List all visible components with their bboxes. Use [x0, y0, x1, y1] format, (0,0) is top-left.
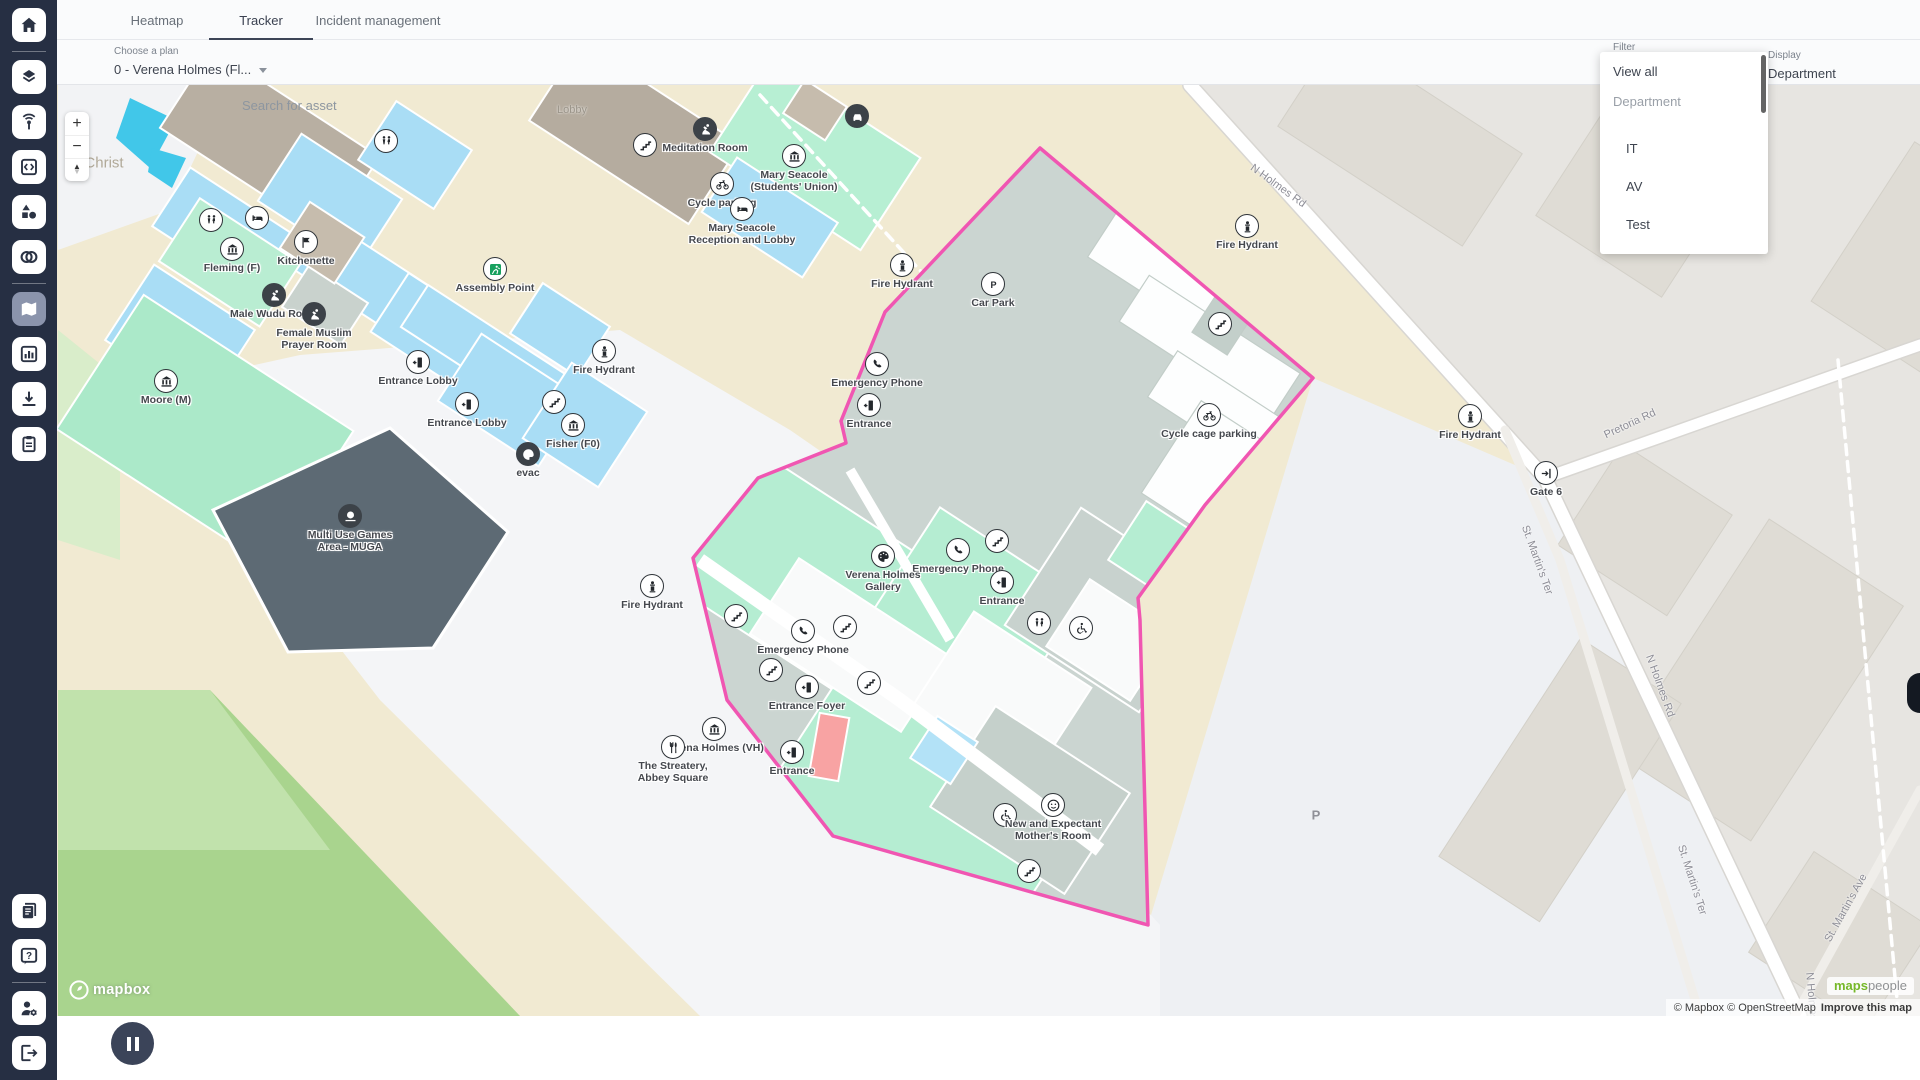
- plan-label: Choose a plan: [114, 46, 179, 57]
- floor-selector-button[interactable]: ▲ ▼: [65, 158, 89, 181]
- right-drawer-handle[interactable]: [1907, 673, 1920, 713]
- sidebar-button-mask-icon[interactable]: [12, 240, 46, 274]
- sidebar-button-chart-icon[interactable]: [12, 337, 46, 371]
- poi-label: Fire Hydrant: [1216, 239, 1278, 251]
- svg-text:P: P: [990, 279, 996, 289]
- poi-label: Fire Hydrant: [621, 599, 683, 611]
- bed-icon[interactable]: [730, 197, 754, 221]
- door-icon[interactable]: [406, 350, 430, 374]
- sidebar-button-code-icon[interactable]: [12, 150, 46, 184]
- flag-icon[interactable]: [294, 230, 318, 254]
- logout-icon: [19, 1043, 39, 1063]
- mapspeople-logo[interactable]: mapspeople: [1827, 977, 1914, 995]
- chevron-down-icon: ▼: [73, 170, 81, 175]
- sidebar-button-layers-icon[interactable]: [12, 60, 46, 94]
- poi-label: Car Park: [971, 297, 1014, 309]
- shapes-icon: [19, 202, 39, 222]
- phone-icon[interactable]: [865, 352, 889, 376]
- poi-label: Multi Use Games Area - MUGA: [308, 529, 393, 554]
- door-icon[interactable]: [795, 675, 819, 699]
- phone-icon[interactable]: [791, 619, 815, 643]
- poi-label: Entrance: [847, 418, 892, 430]
- door-icon[interactable]: [990, 570, 1014, 594]
- poi-label: Fire Hydrant: [573, 364, 635, 376]
- poi-label: evac: [516, 467, 539, 479]
- plan-select[interactable]: 0 - Verena Holmes (Fl...: [114, 62, 267, 77]
- sidebar-divider: [12, 283, 46, 284]
- chart-icon: [19, 344, 39, 364]
- stairs-icon[interactable]: [633, 133, 657, 157]
- basketball-icon[interactable]: [338, 504, 362, 528]
- tab-incident-management[interactable]: Incident management: [313, 0, 443, 40]
- hydrant-icon[interactable]: [640, 574, 664, 598]
- car-icon[interactable]: [845, 104, 869, 128]
- cycle-icon[interactable]: [710, 172, 734, 196]
- smiley-icon[interactable]: [1041, 793, 1065, 817]
- poi-label: New and Expectant Mother's Room: [1005, 818, 1101, 843]
- sidebar-button-home-icon[interactable]: [12, 8, 46, 42]
- pause-button[interactable]: [111, 1022, 154, 1065]
- pause-icon: [127, 1037, 139, 1051]
- poi-label: Kitchenette: [277, 255, 334, 267]
- restroom-icon[interactable]: [374, 129, 398, 153]
- map-icon: [19, 299, 39, 319]
- svg-text:?: ?: [25, 951, 31, 962]
- filter-dropdown-menu: View allDepartmentITAVTest: [1600, 52, 1768, 254]
- download-icon: [19, 389, 39, 409]
- tab-tracker[interactable]: Tracker: [209, 0, 313, 40]
- poi-label: Cycle cage parking: [1161, 428, 1257, 440]
- stairs-icon[interactable]: [833, 615, 857, 639]
- display-label: Display: [1768, 50, 1801, 61]
- restroom-icon[interactable]: [199, 208, 223, 232]
- sidebar-button-logout-icon[interactable]: [12, 1036, 46, 1070]
- mask-icon: [19, 247, 39, 267]
- hydrant-icon[interactable]: [1458, 404, 1482, 428]
- mapbox-attribution[interactable]: © Mapbox: [1674, 1002, 1724, 1014]
- sidebar-button-beacon-icon[interactable]: [12, 105, 46, 139]
- stairs-icon[interactable]: [857, 671, 881, 695]
- prayer-icon[interactable]: [302, 302, 326, 326]
- osm-attribution[interactable]: © OpenStreetMap: [1727, 1002, 1816, 1014]
- menu-item-av[interactable]: AV: [1600, 168, 1768, 206]
- layers-icon: [19, 67, 39, 87]
- door-icon[interactable]: [455, 392, 479, 416]
- parking-icon[interactable]: P: [981, 272, 1005, 296]
- tab-bar: HeatmapTrackerIncident management: [57, 0, 1920, 40]
- bank-icon[interactable]: [702, 717, 726, 741]
- bed-icon[interactable]: [245, 206, 269, 230]
- poi-label: Meditation Room: [662, 142, 747, 154]
- prayer-icon[interactable]: [693, 117, 717, 141]
- door-icon[interactable]: [857, 393, 881, 417]
- menu-scrollbar[interactable]: [1761, 55, 1766, 113]
- assembly-icon[interactable]: [483, 257, 507, 281]
- stairs-icon[interactable]: [759, 658, 783, 682]
- poi-label: Female Muslim Prayer Room: [276, 327, 351, 352]
- tab-heatmap[interactable]: Heatmap: [105, 0, 209, 40]
- sidebar-button-help-icon[interactable]: ?: [12, 939, 46, 973]
- poi-label: Fleming (F): [204, 262, 261, 274]
- poi-label: Fire Hydrant: [871, 278, 933, 290]
- playback-bar: [57, 1016, 1920, 1080]
- clipboard-icon: [19, 434, 39, 454]
- search-input[interactable]: [242, 98, 542, 113]
- news-icon: [19, 901, 39, 921]
- beacon-icon: [19, 112, 39, 132]
- poi-label: Fire Hydrant: [1439, 429, 1501, 441]
- poi-label: Emergency Phone: [912, 563, 1004, 575]
- poi-label: Entrance: [980, 595, 1025, 607]
- poi-label: Verena Holmes Gallery: [845, 569, 920, 594]
- hydrant-icon[interactable]: [592, 339, 616, 363]
- wheelchair-icon[interactable]: [1069, 616, 1093, 640]
- hydrant-icon[interactable]: [890, 253, 914, 277]
- sidebar-button-clipboard-icon[interactable]: [12, 427, 46, 461]
- zoom-in-button[interactable]: +: [65, 112, 89, 135]
- home-icon: [19, 15, 39, 35]
- phone-icon[interactable]: [946, 538, 970, 562]
- poi-label: Gate 6: [1530, 486, 1562, 498]
- menu-item-it[interactable]: IT: [1600, 130, 1768, 168]
- stairs-icon[interactable]: [724, 604, 748, 628]
- palette-icon[interactable]: [516, 442, 540, 466]
- bank-icon[interactable]: [561, 413, 585, 437]
- poi-label: Entrance Lobby: [378, 375, 457, 387]
- sidebar-button-user-settings-icon[interactable]: [12, 991, 46, 1025]
- map-zoom-control: + − ▲ ▼: [65, 112, 89, 181]
- poi-label: Emergency Phone: [831, 377, 923, 389]
- menu-item-department: Department: [1600, 88, 1768, 116]
- map-attribution: © Mapbox © OpenStreetMap Improve this ma…: [1666, 999, 1920, 1016]
- chevron-down-icon: [259, 68, 267, 73]
- menu-item-test[interactable]: Test: [1600, 206, 1768, 244]
- sidebar-divider: [12, 982, 46, 983]
- code-icon: [19, 157, 39, 177]
- poi-label: Entrance Foyer: [769, 700, 845, 712]
- mapbox-logo[interactable]: mapbox: [69, 980, 150, 1000]
- prayer-icon[interactable]: [262, 283, 286, 307]
- restroom-icon[interactable]: [1027, 611, 1051, 635]
- improve-map-link[interactable]: Improve this map: [1821, 1002, 1912, 1014]
- stairs-icon[interactable]: [985, 529, 1009, 553]
- app-sidebar: ?: [0, 0, 57, 1080]
- bank-icon[interactable]: [782, 144, 806, 168]
- poi-label: The Streatery, Abbey Square: [638, 760, 709, 785]
- fork-icon[interactable]: [661, 735, 685, 759]
- bank-icon[interactable]: [220, 237, 244, 261]
- sidebar-button-download-icon[interactable]: [12, 382, 46, 416]
- poi-label: Fisher (F0): [546, 438, 600, 450]
- user-settings-icon: [19, 998, 39, 1018]
- sidebar-button-map-icon[interactable]: [12, 292, 46, 326]
- poi-label: Mary Seacole Reception and Lobby: [689, 222, 796, 247]
- bank-icon[interactable]: [154, 369, 178, 393]
- display-select[interactable]: Department: [1768, 66, 1920, 81]
- sidebar-divider: [12, 51, 46, 52]
- menu-spacer: [1600, 116, 1768, 130]
- poi-label: Emergency Phone: [757, 644, 849, 656]
- poi-label: Entrance Lobby: [427, 417, 506, 429]
- cycle-icon[interactable]: [1197, 403, 1221, 427]
- menu-item-view-all[interactable]: View all: [1600, 56, 1768, 88]
- stairs-icon[interactable]: [542, 390, 566, 414]
- stairs-icon[interactable]: [1208, 312, 1232, 336]
- hydrant-icon[interactable]: [1235, 214, 1259, 238]
- poi-label: Assembly Point: [456, 282, 535, 294]
- zoom-out-button[interactable]: −: [65, 135, 89, 158]
- poi-label: Mary Seacole (Students' Union): [750, 169, 837, 194]
- palette-icon[interactable]: [871, 544, 895, 568]
- help-icon: ?: [19, 946, 39, 966]
- sidebar-button-news-icon[interactable]: [12, 894, 46, 928]
- door-icon[interactable]: [780, 740, 804, 764]
- stairs-icon[interactable]: [1017, 859, 1041, 883]
- poi-label: Entrance: [770, 765, 815, 777]
- poi-label: Moore (M): [141, 394, 191, 406]
- sidebar-button-shapes-icon[interactable]: [12, 195, 46, 229]
- gate-icon[interactable]: [1534, 461, 1558, 485]
